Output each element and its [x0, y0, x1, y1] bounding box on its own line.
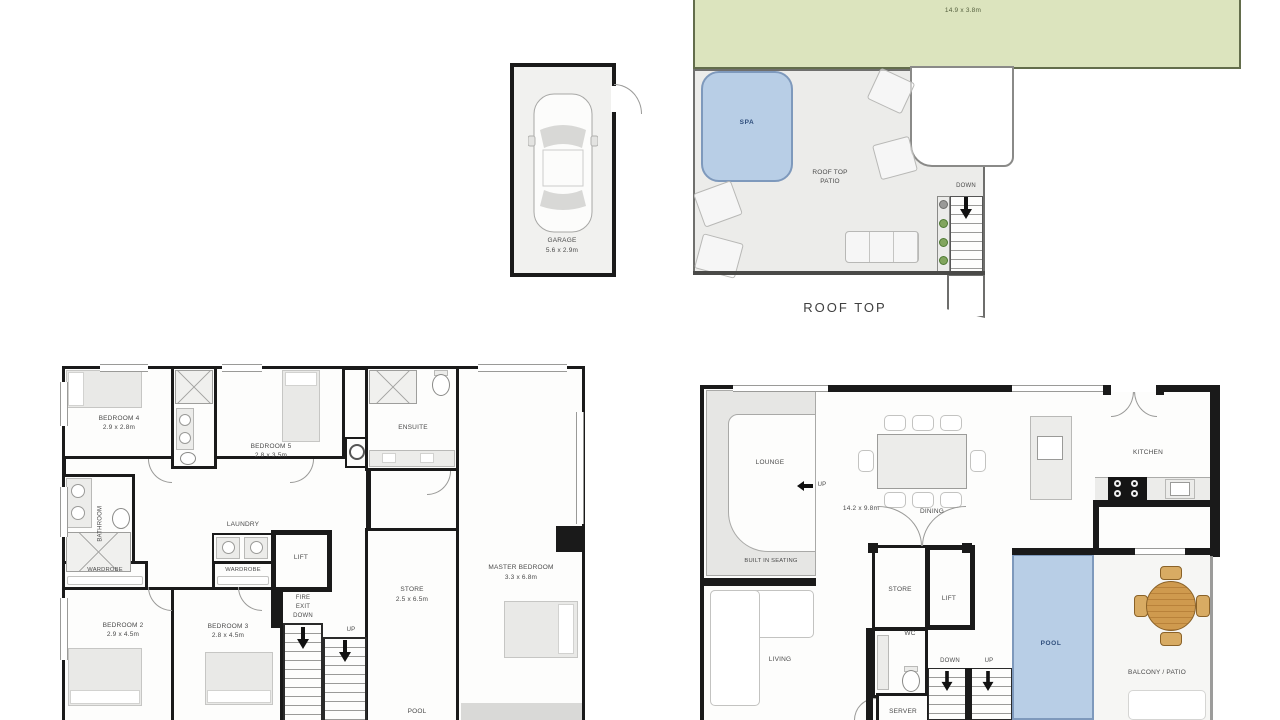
- basin: [420, 453, 434, 463]
- door-jamb: [1156, 385, 1164, 395]
- dining-chair: [970, 450, 986, 472]
- balcony-label: BALCONY / PATIO: [1128, 669, 1186, 677]
- basin: [179, 414, 191, 426]
- lounge-up-label: UP: [818, 482, 827, 490]
- bed-pillow: [207, 690, 271, 703]
- toilet: [902, 670, 920, 692]
- dining-chair: [912, 415, 934, 431]
- patio-bottom-wall: [693, 271, 985, 275]
- wardrobe-rail: [217, 576, 269, 585]
- master-label: MASTER BEDROOM: [488, 564, 553, 572]
- outdoor-table: [1146, 581, 1196, 631]
- pool-top-wall: [1012, 548, 1220, 555]
- dining-chair: [884, 492, 906, 508]
- bedroom3-label: BEDROOM 3: [208, 623, 249, 631]
- down-arrow-icon: [960, 197, 972, 219]
- wardrobe-left-label: WARDROBE: [87, 567, 123, 574]
- laundry-label: LAUNDRY: [227, 521, 259, 529]
- outdoor-seat: [1160, 632, 1182, 646]
- door-jamb: [868, 543, 878, 553]
- overall-dims: 14.2 x 9.8m: [843, 505, 879, 513]
- island-sink: [1037, 436, 1063, 460]
- spa-label: SPA: [740, 119, 755, 127]
- right-wall-thick: [1210, 385, 1220, 557]
- bed-pillow: [285, 372, 317, 386]
- fire-exit-label-2: EXIT: [296, 604, 310, 612]
- rooftop-garden-dims: 14.9 x 3.8m: [945, 7, 981, 15]
- door-jamb: [962, 543, 972, 553]
- toilet: [112, 508, 130, 529]
- pool-label-bf: POOL: [408, 708, 427, 716]
- wall-block: [556, 526, 585, 552]
- bedroom4-dims: 2.9 x 2.8m: [103, 424, 135, 432]
- living-label: LIVING: [769, 656, 792, 664]
- seating-bottom-wall: [700, 578, 816, 586]
- patio-label-2: PATIO: [820, 178, 840, 186]
- left-arrow-icon: [797, 481, 813, 491]
- burner: [1131, 490, 1138, 497]
- patio-roof-cutout: [910, 66, 1014, 167]
- window: [1135, 548, 1185, 555]
- window: [478, 364, 567, 372]
- window: [222, 364, 262, 372]
- down-arrow-icon: [297, 626, 309, 650]
- basin: [349, 444, 365, 460]
- lift-lf-label: LIFT: [942, 595, 956, 603]
- planter-plant: [939, 256, 948, 265]
- kitchen-bottom-wall: [1093, 500, 1220, 507]
- bathroom-label: BATHROOM: [97, 506, 105, 542]
- window: [1012, 385, 1103, 392]
- pool-deck: [461, 703, 582, 720]
- garage-door-arc: [614, 84, 642, 114]
- corridor-wall: [366, 470, 371, 530]
- window: [100, 364, 148, 372]
- basin: [179, 432, 191, 444]
- cabinet: [877, 635, 889, 690]
- server-label: SERVER: [889, 708, 917, 716]
- patio-sofa: [845, 231, 919, 263]
- toilet: [180, 452, 196, 465]
- garage-dims: 5.6 x 2.9m: [546, 247, 578, 255]
- store-label: STORE: [400, 586, 423, 594]
- stair-divider: [965, 668, 972, 720]
- dining-chair: [940, 415, 962, 431]
- pool: [1012, 554, 1094, 720]
- planter-plant: [939, 219, 948, 228]
- store-dims: 2.5 x 6.5m: [396, 596, 428, 604]
- dining-table: [877, 434, 967, 489]
- garage-label: GARAGE: [547, 237, 576, 245]
- bedroom5-dims: 2.8 x 3.5m: [255, 452, 287, 460]
- wardrobe-right-label: WARDROBE: [225, 567, 261, 574]
- burner: [1131, 480, 1138, 487]
- down-label-lf: DOWN: [940, 658, 960, 666]
- bed-pillow: [70, 690, 140, 704]
- ensuite-label: ENSUITE: [398, 424, 428, 432]
- bed-pillow: [558, 604, 574, 654]
- kitchen-label: KITCHEN: [1133, 449, 1163, 457]
- wc-label: WC: [904, 630, 915, 638]
- rooftop-stair-landing: [947, 274, 985, 318]
- bedroom5-label: BEDROOM 5: [251, 443, 292, 451]
- balcony-edge: [1210, 556, 1213, 720]
- fire-exit-wall: [271, 592, 283, 628]
- sofa: [710, 590, 760, 706]
- basin: [71, 484, 85, 498]
- dining-chair: [884, 415, 906, 431]
- outdoor-seat: [1160, 566, 1182, 580]
- window: [60, 382, 68, 426]
- outdoor-seat: [1196, 595, 1210, 617]
- kitchen-door-gap: [1111, 385, 1156, 392]
- rooftop-title: ROOF TOP: [803, 300, 886, 316]
- rooftop-down-label: DOWN: [956, 183, 976, 191]
- window: [576, 412, 584, 524]
- up-label-lf: UP: [985, 658, 994, 666]
- washer-door: [222, 541, 235, 554]
- window: [60, 487, 68, 537]
- basin: [71, 506, 85, 520]
- window: [60, 598, 68, 660]
- store-bedroom-floor: [365, 528, 459, 720]
- wardrobe-rail: [67, 576, 143, 585]
- down-arrow-icon: [339, 640, 351, 662]
- sink-basin: [1170, 482, 1190, 496]
- top-wall-segment: [1158, 385, 1213, 392]
- car-top-view: [528, 92, 598, 234]
- planter-plant: [939, 238, 948, 247]
- bedroom2-dims: 2.9 x 4.5m: [107, 631, 139, 639]
- down-arrow-icon: [941, 671, 953, 691]
- dryer-door: [250, 541, 263, 554]
- toilet: [432, 374, 450, 396]
- burner: [1114, 490, 1121, 497]
- lounge-label: LOUNGE: [756, 459, 785, 467]
- shower: [369, 370, 417, 404]
- dining-label: DINING: [920, 508, 944, 516]
- bedroom2-label: BEDROOM 2: [103, 622, 144, 630]
- bedroom3-dims: 2.8 x 4.5m: [212, 632, 244, 640]
- door-jamb: [1103, 385, 1111, 395]
- down-arrow-icon: [982, 671, 994, 691]
- balcony-furniture-outline: [1128, 690, 1206, 720]
- dining-chair: [912, 492, 934, 508]
- planter-pot: [939, 200, 948, 209]
- built-in-seating-label: BUILT IN SEATING: [744, 558, 797, 565]
- top-wall-segment: [828, 385, 1012, 392]
- shower: [175, 370, 213, 404]
- bedroom4-label: BEDROOM 4: [99, 415, 140, 423]
- rooftop-garden-label: ROOF TOP GARDEN: [930, 0, 996, 3]
- fire-exit-label-3: DOWN: [293, 613, 313, 621]
- bed-pillow: [68, 372, 84, 406]
- store-lf-label: STORE: [888, 586, 911, 594]
- service-wall: [866, 628, 873, 720]
- up-label: UP: [347, 627, 356, 635]
- dining-chair: [858, 450, 874, 472]
- lift-label: LIFT: [294, 554, 308, 562]
- burner: [1114, 480, 1121, 487]
- window: [733, 385, 828, 392]
- basin: [382, 453, 396, 463]
- master-dims: 3.3 x 6.8m: [505, 574, 537, 582]
- patio-label-1: ROOF TOP: [812, 169, 847, 177]
- kitchen-side-wall: [1093, 500, 1099, 555]
- lift-living-floor: [925, 545, 975, 630]
- floorplan-stage: ROOF TOP GARDEN 14.9 x 3.8m SPA ROOF TOP…: [0, 0, 1280, 720]
- fire-exit-label-1: FIRE: [296, 595, 310, 603]
- garage-door-gap: [611, 86, 617, 112]
- pool-label: POOL: [1041, 640, 1062, 648]
